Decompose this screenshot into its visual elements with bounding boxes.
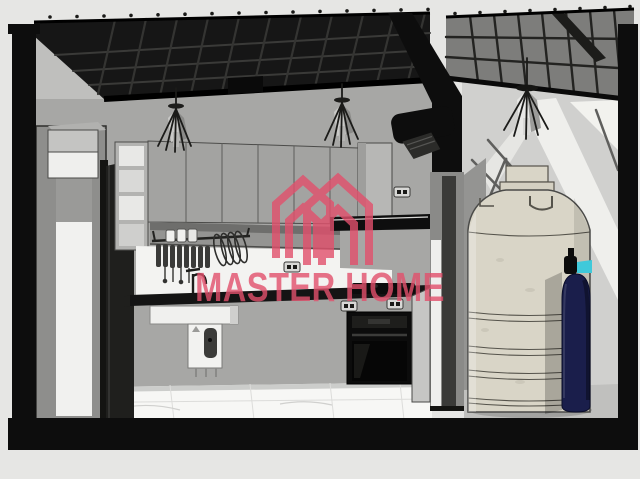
cup xyxy=(166,230,175,242)
cup xyxy=(188,229,197,242)
gas-valve xyxy=(577,260,592,273)
cabinet-interior xyxy=(56,222,92,416)
built-in-oven xyxy=(347,312,412,384)
gas-cylinder xyxy=(562,248,592,412)
upper-box-front xyxy=(48,130,98,152)
power-outlet xyxy=(394,187,410,197)
left-wall-section-cut xyxy=(12,28,36,450)
roof-junction-box xyxy=(228,76,263,94)
foundation-base xyxy=(8,418,636,450)
cup xyxy=(177,229,186,242)
watermark-text: MASTER HOME xyxy=(195,263,445,309)
door-threshold xyxy=(430,406,464,411)
watermark-logo xyxy=(276,178,369,265)
tank-cap xyxy=(506,166,548,182)
gas-valve-knob xyxy=(564,256,577,274)
right-wall-section-cut xyxy=(618,24,638,450)
kitchen-3d-render: MASTER HOME xyxy=(0,0,640,479)
roof-structure-left xyxy=(34,8,430,99)
cylinder-shadow-on-tank xyxy=(545,272,562,414)
